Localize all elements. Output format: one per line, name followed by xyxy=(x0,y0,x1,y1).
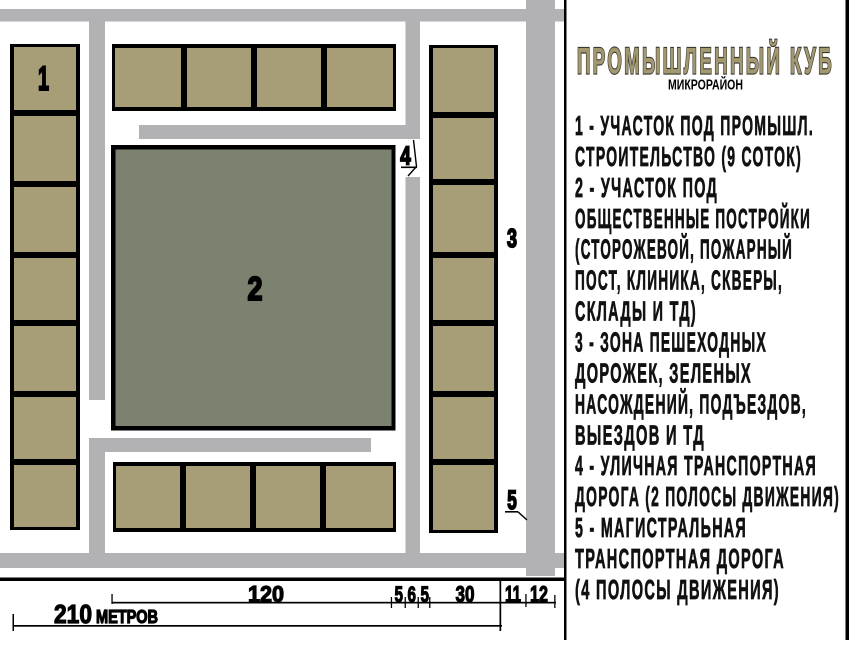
svg-text:3: 3 xyxy=(507,223,517,253)
svg-text:5: 5 xyxy=(507,485,517,515)
svg-text:СКЛАДЫ И ТД): СКЛАДЫ И ТД) xyxy=(575,296,697,327)
svg-text:2: 2 xyxy=(248,270,263,307)
svg-text:210: 210 xyxy=(54,599,92,629)
svg-text:120: 120 xyxy=(248,581,284,607)
svg-text:ОБЩЕСТВЕННЫЕ ПОСТРОЙКИ: ОБЩЕСТВЕННЫЕ ПОСТРОЙКИ xyxy=(575,203,811,234)
svg-text:ПРОМЫШЛЕННЫЙ КУБ: ПРОМЫШЛЕННЫЙ КУБ xyxy=(577,40,834,82)
svg-text:МЕТРОВ: МЕТРОВ xyxy=(96,607,158,627)
svg-text:12: 12 xyxy=(530,581,548,607)
svg-text:ВЫЕЗДОВ И ТД: ВЫЕЗДОВ И ТД xyxy=(575,419,705,450)
svg-text:6: 6 xyxy=(408,582,417,607)
svg-text:5 - МАГИСТРАЛЬНАЯ: 5 - МАГИСТРАЛЬНАЯ xyxy=(575,512,747,543)
svg-text:СТРОИТЕЛЬСТВО (9 СОТОК): СТРОИТЕЛЬСТВО (9 СОТОК) xyxy=(575,141,802,172)
svg-text:ПОСТ, КЛИНИКА, СКВЕРЫ,: ПОСТ, КЛИНИКА, СКВЕРЫ, xyxy=(575,265,783,296)
svg-text:1: 1 xyxy=(38,60,49,98)
svg-text:ДОРОГА (2 ПОЛОСЫ ДВИЖЕНИЯ): ДОРОГА (2 ПОЛОСЫ ДВИЖЕНИЯ) xyxy=(575,481,840,512)
svg-text:4: 4 xyxy=(400,141,411,171)
svg-text:(СТОРОЖЕВОЙ, ПОЖАРНЫЙ: (СТОРОЖЕВОЙ, ПОЖАРНЫЙ xyxy=(575,234,793,265)
svg-text:(4 ПОЛОСЫ ДВИЖЕНИЯ): (4 ПОЛОСЫ ДВИЖЕНИЯ) xyxy=(575,574,780,605)
svg-text:5: 5 xyxy=(421,582,430,607)
svg-text:2 - УЧАСТОК ПОД: 2 - УЧАСТОК ПОД xyxy=(575,172,718,203)
svg-text:30: 30 xyxy=(456,581,475,607)
svg-text:1 - УЧАСТОК ПОД ПРОМЫШЛ.: 1 - УЧАСТОК ПОД ПРОМЫШЛ. xyxy=(575,110,814,141)
svg-text:11: 11 xyxy=(505,581,521,607)
svg-text:НАСОЖДЕНИЙ, ПОДЪЕЗДОВ,: НАСОЖДЕНИЙ, ПОДЪЕЗДОВ, xyxy=(575,388,807,419)
svg-text:4 - УЛИЧНАЯ ТРАНСПОРТНАЯ: 4 - УЛИЧНАЯ ТРАНСПОРТНАЯ xyxy=(575,450,817,481)
svg-text:5: 5 xyxy=(394,582,403,607)
svg-text:ДОРОЖЕК, ЗЕЛЕНЫХ: ДОРОЖЕК, ЗЕЛЕНЫХ xyxy=(575,357,752,388)
svg-text:3 - ЗОНА ПЕШЕХОДНЫХ: 3 - ЗОНА ПЕШЕХОДНЫХ xyxy=(575,327,767,358)
svg-text:ТРАНСПОРТНАЯ ДОРОГА: ТРАНСПОРТНАЯ ДОРОГА xyxy=(575,543,785,574)
svg-text:МИКРОРАЙОН: МИКРОРАЙОН xyxy=(668,76,743,94)
